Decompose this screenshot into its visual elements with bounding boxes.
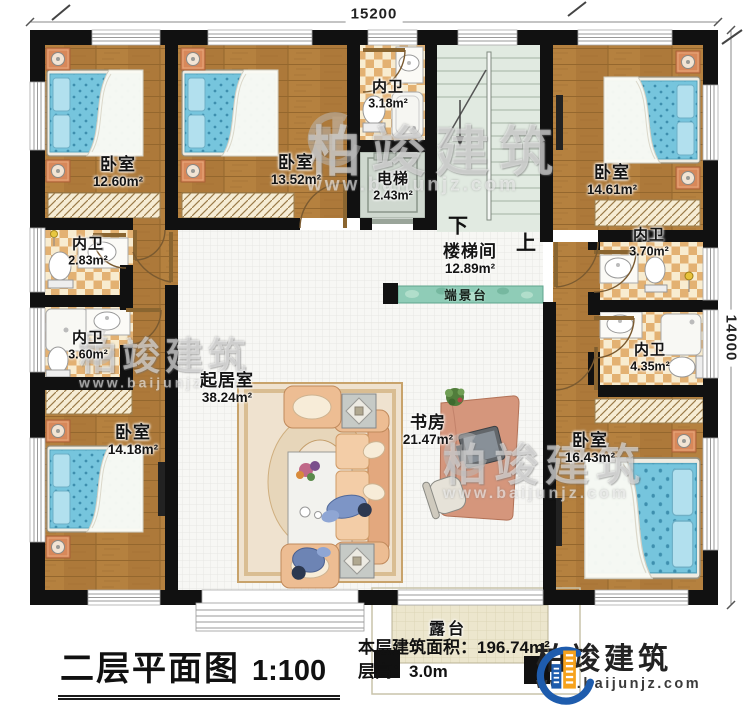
title-block: 二层平面图1:100: [58, 641, 340, 700]
elevator-door: [372, 219, 413, 224]
room-label-bath-right-upper: 内卫 3.70m²: [629, 228, 669, 259]
dimension-top: 15200: [346, 6, 403, 23]
room-label-console-table: 端景台: [444, 285, 488, 304]
room-label-bedroom-top-mid: 卧室 13.52m²: [271, 153, 321, 187]
sofa-set-icon: [238, 383, 402, 588]
room-label-living-room: 起居室 38.24m²: [200, 371, 254, 405]
dimension-right: 14000: [723, 310, 740, 367]
room-label-bath-top: 内卫 3.18m²: [368, 80, 408, 111]
stair-up-label: 上: [516, 227, 536, 256]
room-label-bath-right-lower: 内卫 4.35m²: [630, 343, 670, 374]
room-label-bedroom-top-right: 卧室 14.61m²: [587, 163, 637, 197]
room-label-bedroom-bottom-left: 卧室 14.18m²: [108, 423, 158, 457]
floor-area-line: 本层建筑面积：196.74m²: [358, 636, 550, 660]
plan-title: 二层平面图1:100: [58, 641, 340, 700]
room-label-bath-left-upper: 内卫 2.83m²: [68, 237, 108, 268]
stair-down-label: 下: [448, 210, 468, 239]
room-label-study: 书房 21.47m²: [403, 413, 453, 447]
room-label-elevator: 电梯 2.43m²: [373, 172, 413, 203]
brand-logo: 柏竣建筑 www.baijunjz.com: [536, 644, 701, 692]
floor-height-line: 层高：3.0m: [358, 660, 550, 684]
plan-scale: 1:100: [252, 655, 326, 687]
plan-title-text: 二层平面图: [60, 650, 240, 688]
plan-info: 本层建筑面积：196.74m² 层高：3.0m: [358, 636, 550, 684]
room-label-bedroom-bottom-right: 卧室 16.43m²: [565, 431, 615, 465]
room-label-bath-left-lower: 内卫 3.60m²: [68, 331, 108, 362]
room-label-stairwell: 楼梯间 12.89m²: [443, 242, 497, 276]
brand-logo-icon: [536, 644, 594, 706]
floor-plan-canvas: 柏竣建筑 www.baijunjz.com 柏竣建筑 www.baijunjz.…: [0, 0, 750, 718]
room-label-bedroom-top-left: 卧室 12.60m²: [93, 155, 143, 189]
